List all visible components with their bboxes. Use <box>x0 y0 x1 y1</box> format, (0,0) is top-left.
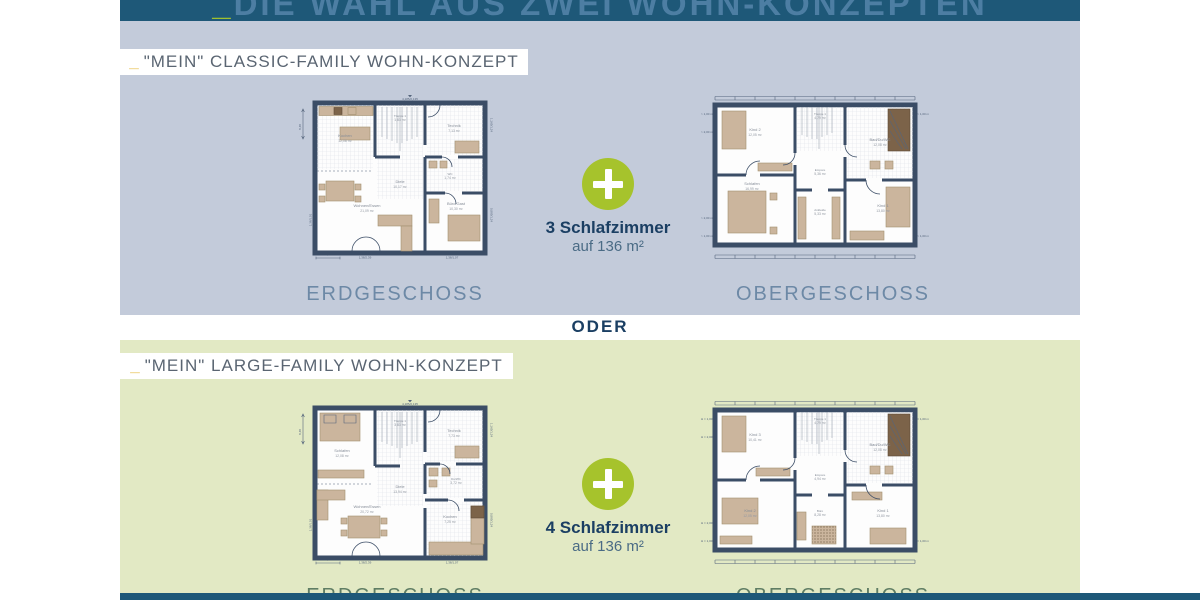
bedrooms-count: 4 Schlafzimmer <box>508 518 708 538</box>
room-name: Schlafen <box>744 181 760 186</box>
room-area: 7,13 m² <box>448 129 460 133</box>
room-name: Bad/Du/WC <box>869 442 890 447</box>
room-area: 4,79 m² <box>814 421 826 425</box>
room-name: Schlafen <box>334 448 350 453</box>
dim-label: > 1,00 m <box>917 112 929 116</box>
room-area: 10,41 m² <box>748 438 762 442</box>
brochure-page: _DIE WAHL AUS ZWEI WOHN-KONZEPTEN _ "MEI… <box>0 0 1200 600</box>
room-name: Kind 1 <box>877 203 889 208</box>
room-name: Kind 3 <box>749 432 761 437</box>
dim-label: > 1,00 m <box>701 112 713 116</box>
dim-label: 1,165/1,24 <box>490 118 494 133</box>
room-area: 3,83 m² <box>394 423 406 427</box>
dim-label: 1,38/1,07 <box>446 561 459 565</box>
room-area: 7,73 m² <box>448 434 460 438</box>
room-area: 7,25 m² <box>444 520 456 524</box>
title-underscore-accent: _ <box>212 0 233 21</box>
room-area: 13,80 m² <box>876 514 890 518</box>
section-large-family: _ "MEIN" LARGE-FAMILY WOHN-KONZEPT 4,185… <box>120 340 1080 593</box>
floorplan-large-erdgeschoss: 4,185/2,135 8,48 9,58 1,38/2,39 1,38/1,0… <box>290 400 500 565</box>
room-area: 12,08 m² <box>335 454 349 458</box>
room-area: 13,80 m² <box>876 209 890 213</box>
room-area: 12,08 m² <box>873 143 887 147</box>
room-area: 5,33 m² <box>814 212 826 216</box>
dim-label: > 1,00 m <box>917 234 929 238</box>
room-area: 13,94 m² <box>393 490 407 494</box>
room-name: Diele <box>395 484 405 489</box>
dim-label: 0,885/1,24 <box>490 513 494 528</box>
bedrooms-area: auf 136 m² <box>508 238 708 255</box>
bedrooms-area: auf 136 m² <box>508 538 708 555</box>
section-classic-family: _ "MEIN" CLASSIC-FAMILY WOHN-KONZEPT 4,1… <box>120 21 1080 315</box>
room-name: Kind 1 <box>877 508 889 513</box>
plus-icon <box>582 458 634 510</box>
dim-label: 1,38/1,01 <box>309 213 313 226</box>
concept-label-text: "MEIN" LARGE-FAMILY WOHN-KONZEPT <box>145 356 503 376</box>
room-area: 16,99 m² <box>745 187 759 191</box>
plus-icon <box>582 158 634 210</box>
dim-label: 1,38/2,39 <box>359 561 372 565</box>
page-title: _DIE WAHL AUS ZWEI WOHN-KONZEPTEN <box>120 0 1080 21</box>
dim-label: > 2,00 m <box>701 130 713 134</box>
label-underscore-accent: _ <box>130 356 140 376</box>
room-area: 20,72 m² <box>360 510 374 514</box>
room-area: 8,28 m² <box>814 513 826 517</box>
concept-label-text: "MEIN" CLASSIC-FAMILY WOHN-KONZEPT <box>144 52 519 72</box>
dim-label: 1,38/1,07 <box>446 256 459 260</box>
dim-label: 1,38/1,01 <box>309 518 313 531</box>
bedrooms-count: 3 Schlafzimmer <box>508 218 708 238</box>
label-underscore-accent: _ <box>129 52 139 72</box>
room-name: Kochen <box>443 514 457 519</box>
room-area: 12,05 m² <box>748 133 762 137</box>
room-area: 10,30 m² <box>449 207 463 211</box>
concept-label-large: _ "MEIN" LARGE-FAMILY WOHN-KONZEPT <box>120 353 513 379</box>
room-name: Bad/Du/WC <box>869 137 890 142</box>
room-name: Kind 2 <box>749 127 761 132</box>
room-area: 5,36 m² <box>814 172 826 176</box>
room-area: 12,05 m² <box>743 514 757 518</box>
room-area: 1,83 m² <box>394 118 406 122</box>
header-bar: _DIE WAHL AUS ZWEI WOHN-KONZEPTEN <box>120 0 1080 21</box>
room-area: 3,72 m² <box>450 481 462 485</box>
room-name: Wohnen/Essen <box>353 203 380 208</box>
concept-label-classic: _ "MEIN" CLASSIC-FAMILY WOHN-KONZEPT <box>120 49 528 75</box>
room-area: 4,79 m² <box>814 116 826 120</box>
room-area: 12,08 m² <box>338 139 352 143</box>
room-name: Kind 2 <box>744 508 756 513</box>
floor-caption-erdgeschoss: ERDGESCHOSS <box>215 283 575 306</box>
floorplan-classic-erdgeschoss: 4,185/2,135 8,48 9,58 1,38/2,39 1,38/1,0… <box>290 95 500 260</box>
room-area: 1,74 m² <box>444 176 456 180</box>
room-area: 10,17 m² <box>393 185 407 189</box>
room-name: Kochen <box>338 133 352 138</box>
dim-label: 8,48 <box>298 124 302 130</box>
room-area: 4,94 m² <box>814 477 826 481</box>
footer-bar <box>120 593 1200 600</box>
room-name: Technik <box>447 428 461 433</box>
dim-label: 8,48 <box>298 429 302 435</box>
room-area: 21,09 m² <box>360 209 374 213</box>
room-area: 12,08 m² <box>873 448 887 452</box>
title-text: DIE WAHL AUS ZWEI WOHN-KONZEPTEN <box>234 0 988 21</box>
room-name: Büro/Gast <box>447 201 466 206</box>
dim-label: 0,885/1,24 <box>490 208 494 223</box>
divider-oder: ODER <box>0 317 1200 337</box>
dim-label: 1,165/1,24 <box>490 423 494 438</box>
floorplan-classic-obergeschoss: > 1,00 m > 2,00 m > 2,00 m > 1,00 m > 1,… <box>700 95 930 260</box>
room-name: Diele <box>395 179 405 184</box>
room-name: Wohnen/Essen <box>353 504 380 509</box>
floorplan-large-obergeschoss: H = 1,00 m H = 2,00 m H = 2,00 m H = 1,0… <box>700 400 930 565</box>
room-name: Technik <box>447 123 461 128</box>
dim-label: 1,38/2,39 <box>359 256 372 260</box>
floor-caption-obergeschoss: OBERGESCHOSS <box>653 283 1013 306</box>
